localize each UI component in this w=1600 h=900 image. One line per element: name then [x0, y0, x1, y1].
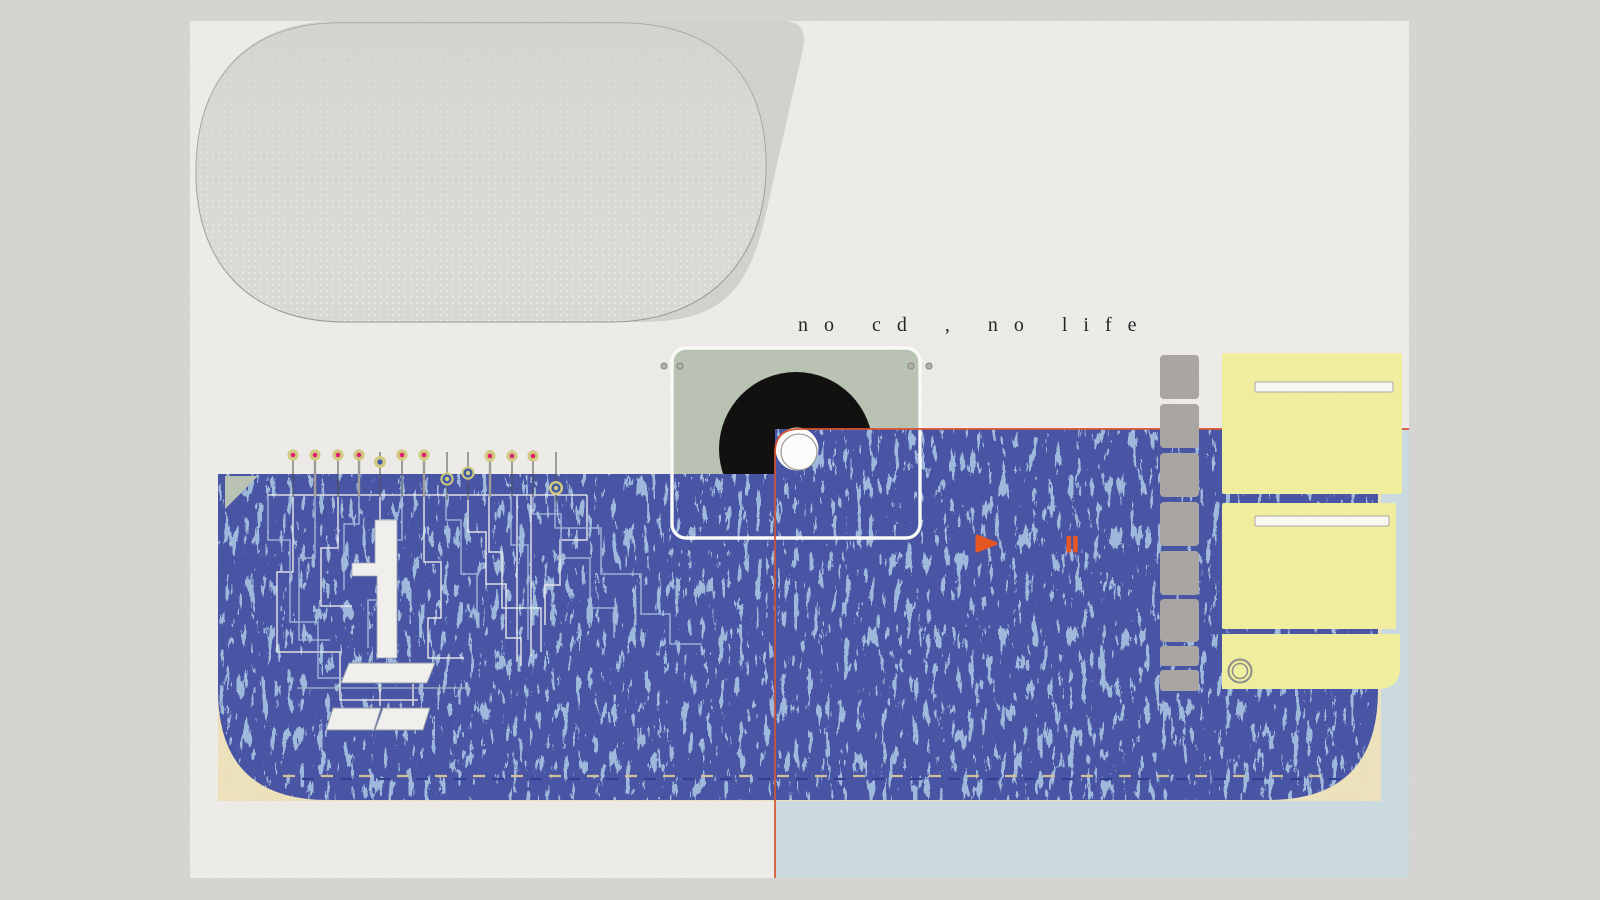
poster-title: no cd , no life	[798, 314, 1153, 336]
ladder-column	[1160, 355, 1199, 691]
poster-art	[0, 0, 1600, 900]
drive-slot	[1255, 382, 1393, 392]
pin-blue-dot	[374, 456, 386, 468]
drive-slot	[1255, 516, 1389, 526]
halftone-blob	[196, 23, 766, 322]
drive-panel	[1222, 634, 1400, 689]
pin-magenta	[287, 449, 538, 461]
drive-panel	[1222, 353, 1402, 494]
poster-stage: no cd , no life	[0, 0, 1600, 900]
drive-panels	[1222, 353, 1402, 689]
